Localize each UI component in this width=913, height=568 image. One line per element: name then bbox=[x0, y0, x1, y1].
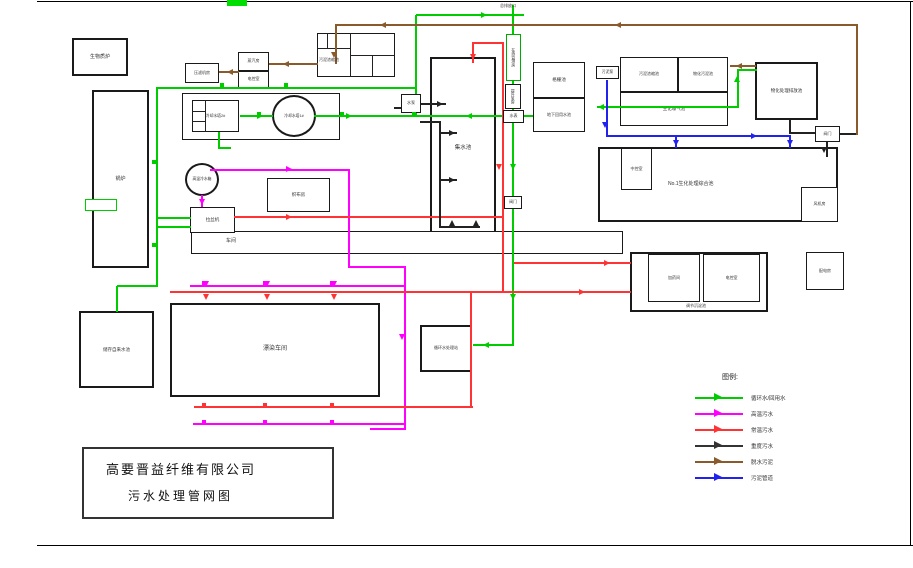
flow-arrow bbox=[199, 199, 205, 205]
legend-entry-label: 循环水/回用水 bbox=[751, 394, 786, 402]
pipe-line bbox=[317, 48, 350, 49]
junction-marker bbox=[152, 243, 156, 247]
water-pump-a: 水泵 bbox=[401, 94, 421, 113]
junction-marker bbox=[412, 112, 416, 116]
legend-entry: 脱水污泥 bbox=[695, 454, 835, 470]
pipe-line bbox=[370, 428, 406, 430]
pipe-line bbox=[597, 106, 738, 108]
flow-arrow bbox=[286, 214, 292, 220]
pipe-line bbox=[269, 63, 318, 65]
pipe-line bbox=[117, 285, 158, 287]
legend-arrow-icon bbox=[714, 409, 722, 417]
pipe-line bbox=[192, 111, 205, 112]
pipe-line bbox=[156, 88, 158, 286]
page-border-top bbox=[37, 1, 913, 2]
outfall-label: 总排放口 bbox=[500, 3, 516, 9]
biomass-furnace: 生物质炉 bbox=[72, 38, 128, 76]
pipe-line bbox=[210, 169, 350, 171]
pipe-line bbox=[372, 55, 373, 77]
flow-arrow bbox=[346, 113, 352, 119]
junction-marker bbox=[284, 83, 288, 87]
pipe-line bbox=[193, 423, 406, 425]
flow-arrow bbox=[673, 140, 679, 146]
lift-pump-room: 提升泵房 bbox=[505, 84, 521, 109]
legend-entry: 循环水/回用水 bbox=[695, 390, 835, 406]
chemical-sludge-pool: 物化污泥池 bbox=[678, 57, 728, 92]
flow-arrow bbox=[821, 147, 827, 153]
flow-arrow bbox=[437, 101, 443, 107]
pipe-line bbox=[606, 135, 791, 137]
page-border-right bbox=[910, 1, 911, 546]
pipe-line bbox=[205, 100, 206, 132]
tap-water-pool: 储存自来水池 bbox=[79, 311, 154, 388]
company-name: 高要晋益纤维有限公司 bbox=[106, 459, 256, 478]
flow-arrow bbox=[449, 177, 455, 183]
junction-marker bbox=[330, 281, 334, 285]
legend-line-swatch bbox=[695, 461, 743, 463]
filter-press-room: 压滤机房 bbox=[185, 63, 219, 83]
pipe-line bbox=[218, 147, 231, 149]
pipe-line bbox=[416, 14, 524, 16]
legend-entry: 污泥管道 bbox=[695, 470, 835, 486]
drawing-machine: 拉丝机 bbox=[190, 207, 235, 233]
flow-arrow bbox=[449, 130, 455, 136]
pipe-line bbox=[350, 55, 395, 56]
flow-arrow bbox=[751, 133, 757, 139]
legend-title: 图例: bbox=[722, 372, 835, 382]
legend-line-swatch bbox=[695, 413, 743, 415]
junction-marker bbox=[263, 281, 267, 285]
power-distribution-room: 配电房 bbox=[806, 252, 844, 290]
flow-arrow bbox=[264, 294, 270, 300]
sludge-thickening-pool-b: 污泥浓缩池 bbox=[620, 57, 678, 92]
flow-arrow bbox=[466, 113, 472, 119]
flow-arrow bbox=[734, 76, 740, 82]
workshop-strip-label: 车间 bbox=[226, 237, 236, 244]
legend-entry: 常温污水 bbox=[695, 422, 835, 438]
pipe-line bbox=[439, 226, 480, 228]
legend-arrow-icon bbox=[714, 425, 722, 433]
power-control-room-a: 电控室 bbox=[238, 71, 269, 88]
pipe-line bbox=[473, 42, 504, 44]
flow-arrow bbox=[496, 164, 502, 170]
legend-entry: 高温污水 bbox=[695, 406, 835, 422]
junction-marker bbox=[202, 281, 206, 285]
junction-marker bbox=[202, 403, 206, 407]
pipe-line bbox=[737, 69, 757, 71]
pipe-line bbox=[170, 291, 631, 293]
legend: 图例: 循环水/回用水高温污水常温污水重度污水脱水污泥污泥管道 bbox=[695, 372, 835, 486]
flow-arrow bbox=[736, 63, 742, 69]
valve-b: 阀门 bbox=[815, 126, 840, 142]
junction-marker bbox=[152, 160, 156, 164]
legend-arrow-icon bbox=[714, 393, 722, 401]
legend-entry-label: 重度污水 bbox=[751, 442, 773, 450]
legend-entry-label: 污泥管道 bbox=[751, 474, 773, 482]
junction-marker bbox=[340, 112, 344, 116]
regulating-pool-label: 调节沉淀池 bbox=[686, 303, 706, 309]
green-connector-box bbox=[85, 199, 117, 211]
workshop-strip bbox=[191, 231, 623, 254]
legend-arrow-icon bbox=[714, 473, 722, 481]
grille-pool: 格栅池 bbox=[533, 62, 585, 98]
weaving-room: 织布房 bbox=[267, 178, 330, 212]
dosing-room: 加药间 bbox=[648, 254, 700, 302]
junction-marker bbox=[330, 403, 334, 407]
drawing-canvas: 生物质炉锅炉压滤机房蒸汽房电控室冷却水塔2#冷却水塔1#集水池水泵在线监测房提升… bbox=[0, 0, 913, 568]
pipe-line bbox=[730, 65, 756, 67]
steam-room: 蒸汽房 bbox=[238, 52, 269, 71]
sludge-pump: 污泥泵 bbox=[596, 66, 619, 79]
legend-entries: 循环水/回用水高温污水常温污水重度污水脱水污泥污泥管道 bbox=[695, 390, 835, 486]
pipe-line bbox=[156, 87, 417, 89]
flow-arrow bbox=[470, 54, 476, 60]
pipe-line bbox=[420, 121, 440, 123]
legend-arrow-icon bbox=[714, 457, 722, 465]
flow-arrow bbox=[510, 294, 516, 300]
pipe-line bbox=[348, 266, 406, 268]
pipe-line bbox=[470, 291, 472, 408]
flow-arrow bbox=[510, 164, 516, 170]
legend-arrow-icon bbox=[714, 441, 722, 449]
fan-room: 风机房 bbox=[801, 187, 838, 222]
flow-arrow bbox=[449, 220, 455, 226]
valve-a: 阀门 bbox=[504, 196, 522, 209]
junction-marker bbox=[263, 420, 267, 424]
pipe-line bbox=[234, 216, 504, 218]
cooling-tower-2: 冷却水塔2# bbox=[192, 100, 239, 132]
flow-arrow bbox=[473, 220, 479, 226]
cooling-tower-1: 冷却水塔1# bbox=[272, 95, 316, 137]
flow-arrow bbox=[602, 122, 608, 128]
central-control-room: 中控室 bbox=[621, 148, 652, 190]
pipe-line bbox=[335, 24, 857, 26]
legend-entry-label: 高温污水 bbox=[751, 410, 773, 418]
pipe-line bbox=[439, 121, 441, 228]
flow-arrow bbox=[787, 140, 793, 146]
junction-marker bbox=[220, 83, 224, 87]
flow-arrow bbox=[203, 294, 209, 300]
pipe-line bbox=[348, 169, 350, 268]
flow-arrow bbox=[380, 22, 386, 28]
legend-line-swatch bbox=[695, 477, 743, 479]
hot-water-tank: 高温冷水箱 bbox=[185, 163, 219, 196]
pipe-line bbox=[116, 286, 118, 312]
comprehensive-pool-label: No.1生化处理综合池 bbox=[668, 180, 714, 187]
pipe-line bbox=[190, 285, 406, 287]
flow-arrow bbox=[615, 22, 621, 28]
circulating-water-station: 循环水处理站 bbox=[420, 325, 472, 372]
junction-marker bbox=[330, 420, 334, 424]
underground-reuse-pool: 地下回用水池 bbox=[533, 98, 585, 132]
flow-arrow bbox=[399, 334, 405, 340]
pipe-line bbox=[473, 344, 514, 346]
flow-arrow bbox=[286, 166, 292, 172]
pipe-line bbox=[606, 80, 608, 137]
pipe-line bbox=[218, 132, 220, 148]
thickener-a-label: 污泥浓缩池 bbox=[319, 57, 339, 63]
pipe-line bbox=[192, 121, 205, 122]
aeration-pool: 生化曝气池 bbox=[620, 92, 728, 126]
junction-marker bbox=[263, 403, 267, 407]
flow-arrow bbox=[283, 61, 289, 67]
pipe-line bbox=[502, 43, 504, 293]
pipe-line bbox=[856, 24, 858, 135]
junction-marker bbox=[202, 420, 206, 424]
chemical-discharge-pool: 物化处理排放池 bbox=[755, 62, 818, 120]
power-control-room-b: 电控室 bbox=[703, 254, 760, 302]
online-monitoring-room: 在线监测房 bbox=[506, 34, 521, 81]
flow-arrow bbox=[331, 294, 337, 300]
flow-arrow bbox=[598, 104, 604, 110]
title-block: 高要晋益纤维有限公司 污水处理管网图 bbox=[82, 447, 334, 519]
water-meter: 水表 bbox=[503, 110, 524, 123]
pipe-line bbox=[789, 132, 817, 134]
pipe-line bbox=[157, 226, 191, 228]
legend-line-swatch bbox=[695, 429, 743, 431]
bleaching-dyeing-workshop: 漂染车间 bbox=[170, 303, 380, 397]
pipe-line bbox=[327, 33, 328, 48]
legend-entry-label: 脱水污泥 bbox=[751, 458, 773, 466]
flow-arrow bbox=[579, 289, 585, 295]
green-highlight-tab bbox=[227, 0, 247, 6]
boiler: 锅炉 bbox=[92, 90, 149, 268]
legend-line-swatch bbox=[695, 445, 743, 447]
flow-arrow bbox=[227, 69, 233, 75]
pipe-line bbox=[157, 217, 191, 219]
junction-marker bbox=[257, 112, 261, 116]
pipe-line bbox=[514, 262, 631, 264]
legend-line-swatch bbox=[695, 397, 743, 399]
flow-arrow bbox=[604, 260, 610, 266]
legend-entry-label: 常温污水 bbox=[751, 426, 773, 434]
flow-arrow bbox=[483, 342, 489, 348]
legend-entry: 重度污水 bbox=[695, 438, 835, 454]
page-border-bottom bbox=[37, 545, 913, 546]
flow-arrow bbox=[481, 12, 487, 18]
drawing-title: 污水处理管网图 bbox=[128, 487, 233, 504]
